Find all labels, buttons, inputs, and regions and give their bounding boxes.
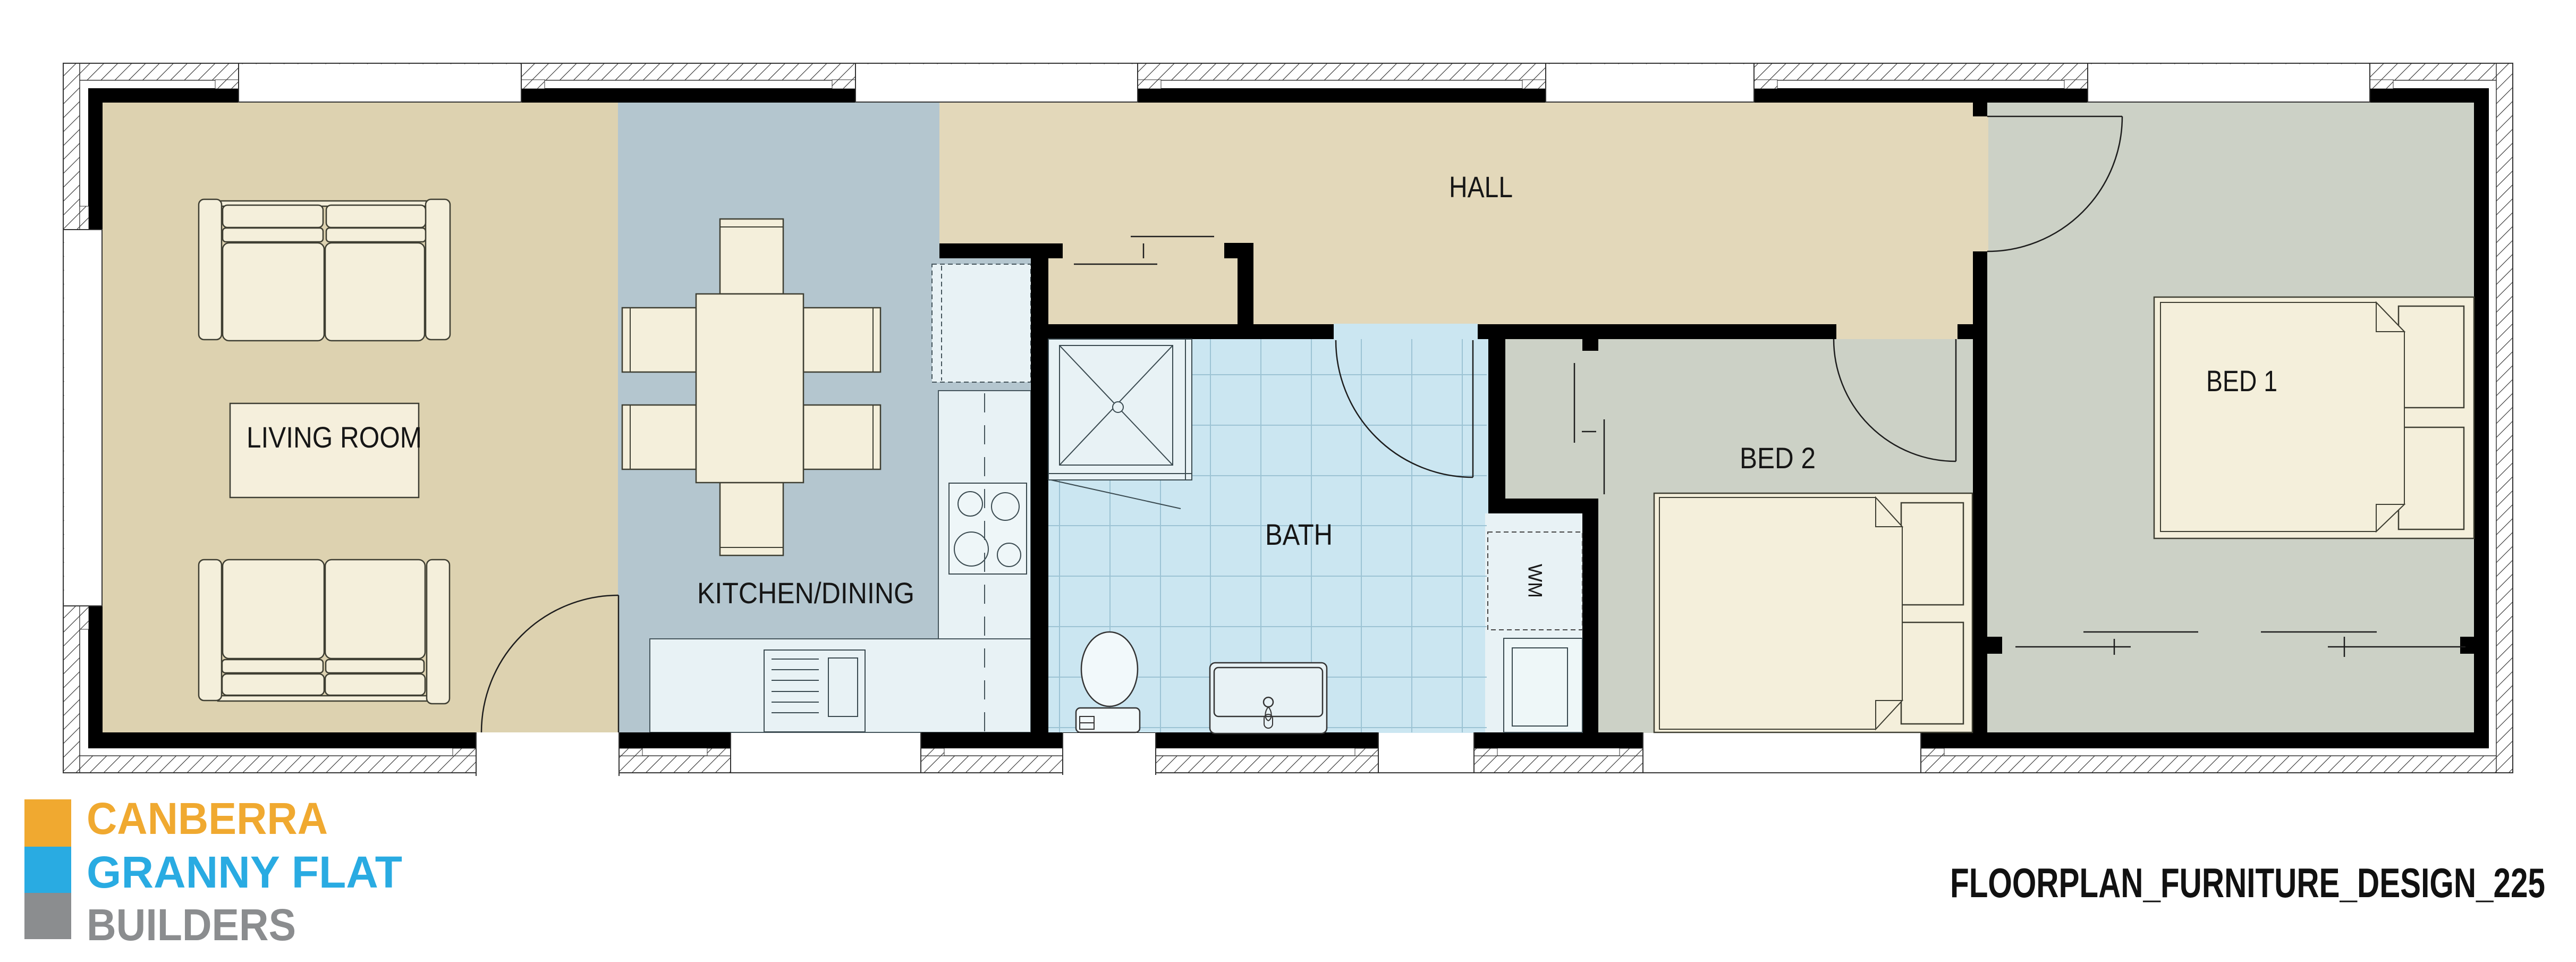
- svg-text:FLOORPLAN_FURNITURE_DESIGN_225: FLOORPLAN_FURNITURE_DESIGN_225: [1950, 859, 2545, 906]
- svg-text:KITCHEN/DINING: KITCHEN/DINING: [697, 576, 914, 610]
- svg-text:BED 1: BED 1: [2206, 364, 2277, 398]
- svg-text:HALL: HALL: [1449, 170, 1513, 204]
- svg-text:LIVING ROOM: LIVING ROOM: [247, 420, 422, 454]
- svg-text:BUILDERS: BUILDERS: [87, 900, 296, 950]
- svg-text:BED 2: BED 2: [1740, 441, 1816, 475]
- svg-text:BATH: BATH: [1265, 518, 1333, 551]
- svg-text:CANBERRA: CANBERRA: [87, 794, 328, 843]
- svg-text:WM: WM: [1524, 564, 1546, 598]
- svg-text:GRANNY FLAT: GRANNY FLAT: [87, 847, 402, 897]
